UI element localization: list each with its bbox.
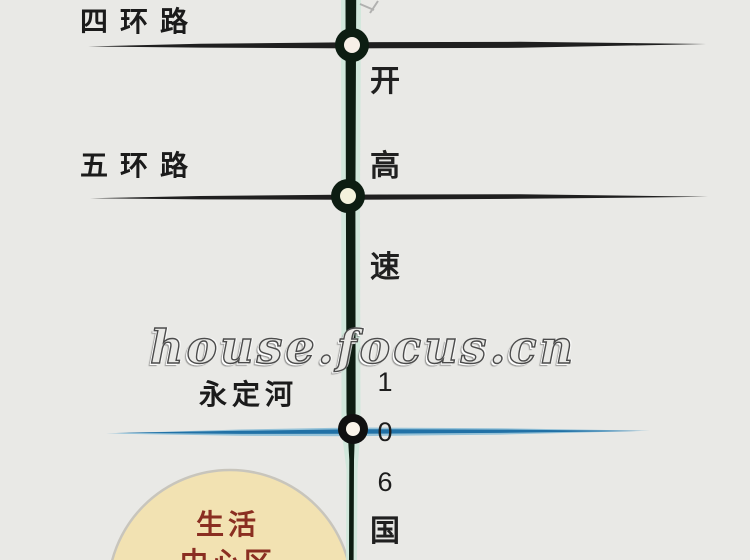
zone-label-line2: 中心区: [128, 544, 328, 560]
interchange-node-ring4: [335, 28, 369, 62]
ring-road-5-line: [90, 194, 708, 200]
river-label: 永定河: [199, 380, 298, 410]
zone-label-line1: 生活: [128, 506, 328, 544]
expressway-label-char-2: 高: [367, 151, 403, 183]
ring-road-5-label: 五环路: [80, 151, 200, 181]
partial-glyph-marks: [360, 1, 378, 13]
zone-label: 生活 中心区: [128, 506, 328, 560]
ring-road-4-line: [88, 42, 706, 49]
interchange-node-river: [338, 414, 368, 444]
highway-number-digit-1: 1: [367, 366, 403, 398]
expressway-label-char-1: 开: [367, 66, 403, 98]
ring-road-4-label: 四环路: [80, 7, 200, 37]
interchange-node-ring5: [331, 179, 365, 213]
highway-number-digit-6: 6: [367, 466, 403, 498]
map-canvas: house.focus.cn 四环路 五环路 永定河 开 高 速 1 0 6 国…: [0, 0, 750, 560]
watermark: house.focus.cn: [150, 320, 576, 374]
highway-number-digit-0: 0: [367, 416, 403, 448]
highway-label-char-guo: 国: [367, 516, 403, 548]
expressway-label-char-3: 速: [367, 252, 403, 284]
